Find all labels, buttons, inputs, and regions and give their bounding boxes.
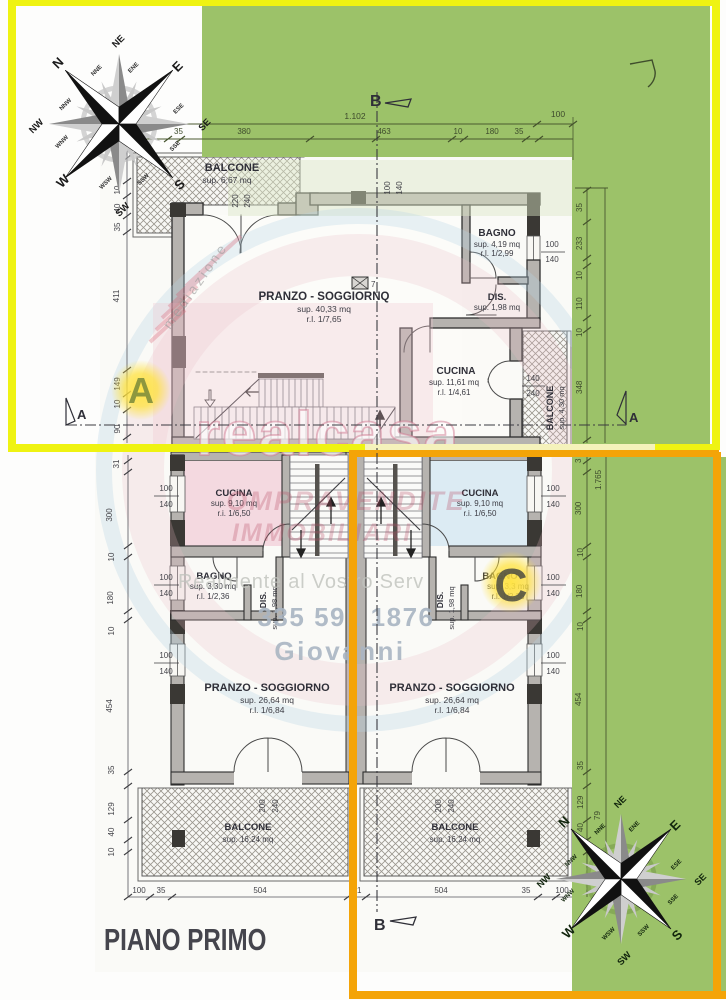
svg-text:sup. 26,64 mq: sup. 26,64 mq (425, 695, 479, 705)
svg-text:sup. 4,19 mq: sup. 4,19 mq (474, 240, 520, 249)
svg-text:140: 140 (159, 589, 173, 598)
svg-text:300: 300 (574, 501, 583, 515)
svg-text:220: 220 (231, 194, 240, 208)
svg-text:DIS.: DIS. (488, 292, 506, 303)
svg-text:200: 200 (434, 799, 443, 813)
svg-text:r.l. 1/4,61: r.l. 1/4,61 (438, 388, 471, 397)
svg-text:35: 35 (575, 203, 584, 212)
svg-text:r.l. 1/6,84: r.l. 1/6,84 (250, 705, 285, 715)
svg-text:3: 3 (574, 458, 583, 463)
svg-text:sup. 4,30 mq: sup. 4,30 mq (557, 386, 566, 429)
svg-text:IMMOBILIARI: IMMOBILIARI (232, 519, 412, 547)
svg-text:7: 7 (371, 280, 376, 289)
svg-text:A: A (77, 407, 87, 422)
svg-text:140: 140 (545, 255, 559, 264)
svg-text:180: 180 (485, 127, 499, 136)
svg-text:realcasa: realcasa (196, 400, 460, 469)
svg-text:140: 140 (159, 667, 173, 676)
svg-text:1.102: 1.102 (344, 111, 366, 121)
svg-text:Giovanni: Giovanni (274, 636, 405, 666)
svg-text:PRANZO - SOGGIORNQ: PRANZO - SOGGIORNQ (259, 291, 390, 303)
svg-text:CUCINA: CUCINA (437, 366, 476, 377)
svg-text:PIANO PRIMO: PIANO PRIMO (104, 922, 266, 957)
svg-text:r.l. 1/6,84: r.l. 1/6,84 (435, 705, 470, 715)
svg-text:100: 100 (546, 573, 560, 582)
svg-text:140: 140 (395, 181, 404, 195)
svg-text:OMPRAVENDITE: OMPRAVENDITE (226, 486, 466, 516)
svg-text:A: A (128, 370, 154, 411)
svg-text:sup. 1,98 mq: sup. 1,98 mq (474, 303, 520, 312)
svg-text:10: 10 (107, 626, 116, 635)
svg-text:B: B (370, 93, 382, 110)
svg-text:100: 100 (383, 181, 392, 195)
svg-text:129: 129 (107, 802, 116, 816)
svg-text:sup. 16,24 mq: sup. 16,24 mq (223, 835, 274, 844)
svg-text:79: 79 (593, 811, 602, 820)
svg-text:10: 10 (454, 127, 463, 136)
svg-text:140: 140 (526, 374, 540, 383)
svg-text:100: 100 (159, 573, 173, 582)
svg-text:r.l. 1/2,99: r.l. 1/2,99 (481, 249, 514, 258)
svg-text:10: 10 (107, 847, 116, 856)
svg-text:140: 140 (546, 500, 560, 509)
svg-text:100: 100 (546, 651, 560, 660)
svg-text:10: 10 (576, 622, 585, 631)
svg-text:454: 454 (105, 699, 114, 713)
svg-text:sup. 11,61 mq: sup. 11,61 mq (429, 378, 479, 387)
svg-text:sup. 1,98 mq: sup. 1,98 mq (447, 586, 456, 629)
svg-text:sup. 16,24 mq: sup. 16,24 mq (430, 835, 481, 844)
svg-text:100: 100 (545, 240, 559, 249)
svg-text:35: 35 (522, 886, 531, 895)
svg-text:140: 140 (159, 500, 173, 509)
svg-text:C: C (494, 559, 527, 611)
svg-text:200: 200 (258, 799, 267, 813)
svg-text:BAGNO: BAGNO (478, 228, 515, 239)
svg-text:40: 40 (576, 823, 585, 832)
svg-text:504: 504 (253, 886, 267, 895)
svg-text:40: 40 (107, 827, 116, 836)
svg-text:380: 380 (237, 127, 251, 136)
svg-text:140: 140 (546, 667, 560, 676)
svg-text:sup. 26,64 mq: sup. 26,64 mq (240, 695, 294, 705)
svg-text:240: 240 (447, 799, 456, 813)
svg-text:180: 180 (575, 584, 584, 598)
svg-text:BALCONE: BALCONE (225, 822, 272, 833)
svg-text:10: 10 (107, 552, 116, 561)
svg-text:10: 10 (575, 271, 584, 280)
svg-text:140: 140 (546, 589, 560, 598)
svg-text:240: 240 (243, 194, 252, 208)
svg-text:35: 35 (107, 765, 116, 774)
svg-text:100: 100 (159, 651, 173, 660)
svg-text:100: 100 (159, 484, 173, 493)
svg-text:110: 110 (575, 297, 584, 310)
svg-text:240: 240 (271, 799, 280, 813)
svg-text:35: 35 (157, 886, 166, 895)
svg-text:463: 463 (377, 127, 391, 136)
svg-text:B: B (374, 917, 386, 934)
svg-text:240: 240 (526, 389, 540, 398)
svg-text:sup. 6,67 mq: sup. 6,67 mq (202, 175, 251, 185)
svg-text:10: 10 (575, 328, 584, 337)
svg-text:r.l. 1/2,36: r.l. 1/2,36 (197, 592, 230, 601)
svg-text:BALCONE: BALCONE (432, 822, 479, 833)
svg-text:504: 504 (434, 886, 448, 895)
svg-text:454: 454 (574, 692, 583, 706)
svg-text:300: 300 (105, 508, 114, 522)
svg-text:r.i. 1/6,50: r.i. 1/6,50 (464, 509, 497, 518)
svg-text:BALCONE: BALCONE (205, 162, 259, 174)
svg-text:DIS.: DIS. (435, 592, 445, 609)
svg-text:35: 35 (174, 127, 183, 136)
svg-text:BALCONE: BALCONE (545, 386, 555, 431)
svg-text:100: 100 (551, 109, 565, 119)
svg-text:35: 35 (515, 127, 524, 136)
svg-text:35: 35 (576, 761, 585, 770)
svg-text:10: 10 (113, 185, 122, 194)
svg-text:PRANZO - SOGGIORNO: PRANZO - SOGGIORNO (204, 682, 330, 694)
svg-text:CUCINA: CUCINA (462, 488, 499, 499)
svg-text:PRANZO - SOGGIORNO: PRANZO - SOGGIORNO (389, 682, 515, 694)
svg-text:100: 100 (546, 484, 560, 493)
svg-text:411: 411 (112, 289, 121, 302)
svg-text:r.l. 1/7,65: r.l. 1/7,65 (307, 314, 342, 324)
svg-text:31: 31 (112, 459, 121, 468)
svg-text:233: 233 (575, 236, 584, 250)
svg-text:348: 348 (575, 380, 584, 394)
svg-text:180: 180 (106, 591, 115, 605)
svg-text:10: 10 (576, 548, 585, 557)
svg-text:sup. 40,33 mq: sup. 40,33 mq (297, 304, 351, 314)
svg-text:1.765: 1.765 (594, 469, 603, 490)
svg-text:100: 100 (132, 886, 146, 895)
svg-text:335 591 1876: 335 591 1876 (257, 602, 434, 632)
svg-text:129: 129 (576, 795, 585, 809)
svg-text:Realmente al Vostro Serv: Realmente al Vostro Serv (178, 571, 424, 593)
svg-text:35: 35 (113, 222, 122, 231)
svg-text:A: A (629, 410, 639, 425)
